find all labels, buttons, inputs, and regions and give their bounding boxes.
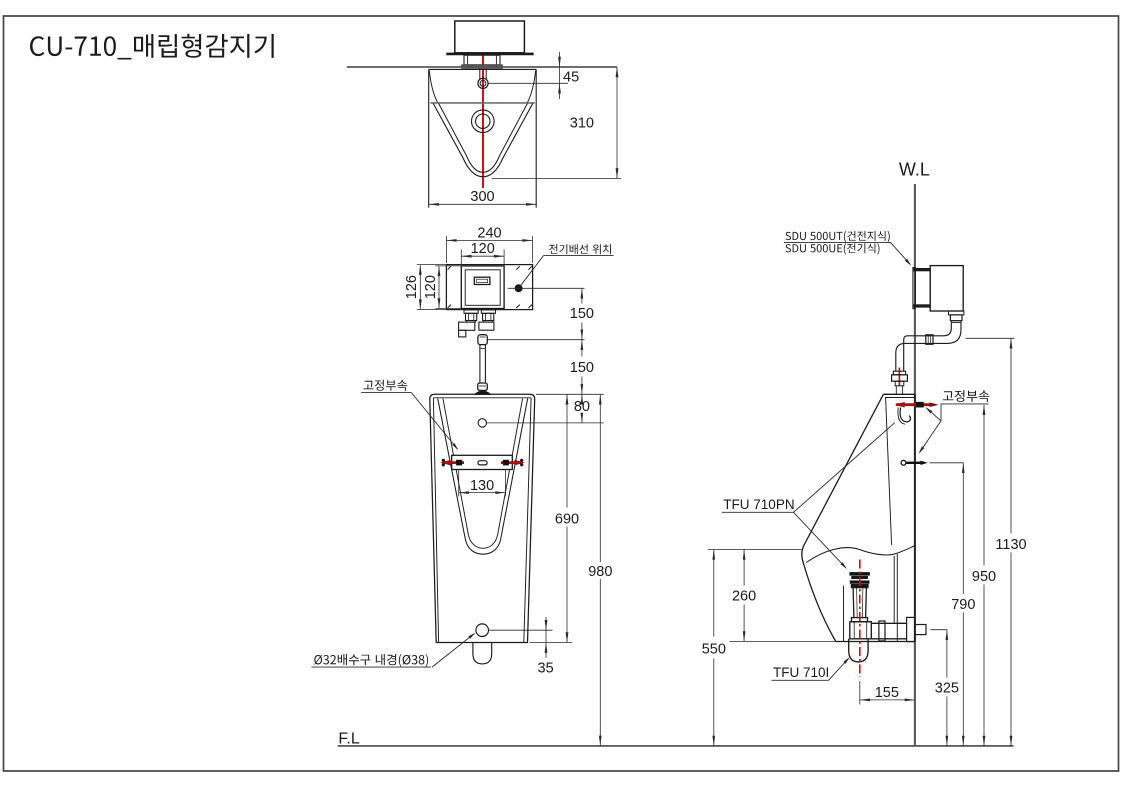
svg-text:150: 150 bbox=[570, 360, 594, 376]
svg-text:550: 550 bbox=[702, 642, 726, 658]
svg-text:45: 45 bbox=[563, 70, 579, 86]
svg-text:240: 240 bbox=[477, 225, 501, 241]
svg-text:690: 690 bbox=[555, 512, 579, 528]
svg-text:155: 155 bbox=[875, 685, 899, 701]
svg-text:130: 130 bbox=[470, 478, 494, 494]
svg-text:150: 150 bbox=[570, 306, 594, 322]
svg-text:F.L: F.L bbox=[338, 730, 359, 747]
svg-text:260: 260 bbox=[732, 588, 756, 604]
svg-text:120: 120 bbox=[471, 241, 495, 257]
svg-text:790: 790 bbox=[951, 597, 975, 613]
svg-text:80: 80 bbox=[574, 399, 590, 415]
svg-text:35: 35 bbox=[538, 660, 554, 676]
svg-text:310: 310 bbox=[570, 115, 594, 131]
svg-text:W.L: W.L bbox=[899, 159, 930, 179]
svg-text:1130: 1130 bbox=[995, 537, 1026, 553]
svg-text:950: 950 bbox=[972, 569, 996, 585]
svg-text:126: 126 bbox=[404, 275, 420, 299]
svg-text:300: 300 bbox=[470, 189, 494, 205]
svg-text:TFU 710I: TFU 710I bbox=[773, 665, 829, 680]
svg-text:TFU 710PN: TFU 710PN bbox=[723, 497, 794, 512]
svg-text:325: 325 bbox=[935, 681, 959, 697]
svg-text:120: 120 bbox=[423, 275, 439, 299]
svg-text:980: 980 bbox=[588, 564, 612, 580]
